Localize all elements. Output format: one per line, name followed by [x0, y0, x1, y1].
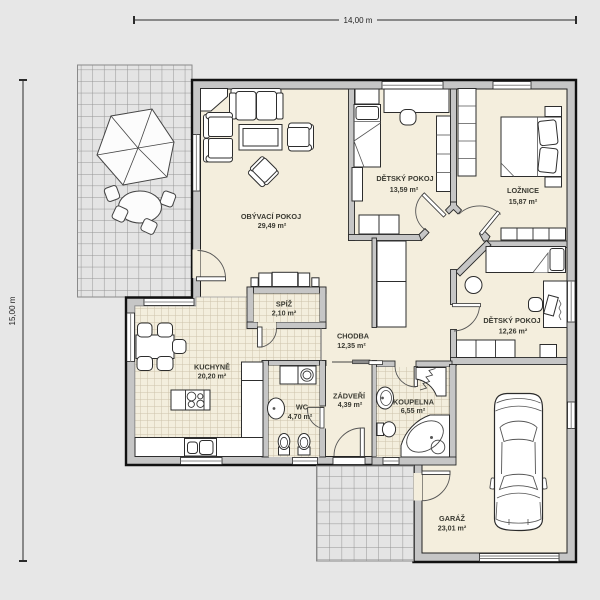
- svg-text:13,59 m²: 13,59 m²: [390, 186, 419, 194]
- svg-text:14,00 m: 14,00 m: [344, 16, 373, 25]
- svg-text:20,20 m²: 20,20 m²: [198, 373, 227, 381]
- svg-text:15,87 m²: 15,87 m²: [509, 198, 538, 206]
- svg-text:OBÝVACÍ POKOJ: OBÝVACÍ POKOJ: [241, 212, 301, 221]
- svg-text:GARÁŽ: GARÁŽ: [439, 514, 465, 523]
- svg-text:KOUPELNA: KOUPELNA: [393, 398, 435, 407]
- svg-text:KUCHYNĚ: KUCHYNĚ: [194, 363, 230, 372]
- svg-text:DĚTSKÝ POKOJ: DĚTSKÝ POKOJ: [376, 174, 433, 183]
- svg-text:6,55 m²: 6,55 m²: [401, 407, 426, 415]
- svg-text:4,39 m²: 4,39 m²: [338, 401, 363, 409]
- svg-text:15,00 m: 15,00 m: [8, 296, 17, 325]
- svg-text:2,10 m²: 2,10 m²: [272, 310, 297, 318]
- svg-text:SPÍŽ: SPÍŽ: [276, 300, 293, 309]
- svg-text:12,26 m²: 12,26 m²: [499, 328, 528, 336]
- svg-text:CHODBA: CHODBA: [337, 332, 370, 341]
- svg-text:ZÁDVEŘÍ: ZÁDVEŘÍ: [333, 392, 366, 401]
- svg-text:23,01 m²: 23,01 m²: [438, 525, 467, 533]
- svg-text:4,70 m²: 4,70 m²: [288, 413, 313, 421]
- svg-text:LOŽNICE: LOŽNICE: [507, 186, 539, 195]
- svg-text:WC: WC: [296, 403, 309, 412]
- svg-text:DĚTSKÝ POKOJ: DĚTSKÝ POKOJ: [483, 316, 540, 325]
- svg-text:29,49 m²: 29,49 m²: [258, 222, 287, 230]
- svg-text:12,35 m²: 12,35 m²: [337, 342, 366, 350]
